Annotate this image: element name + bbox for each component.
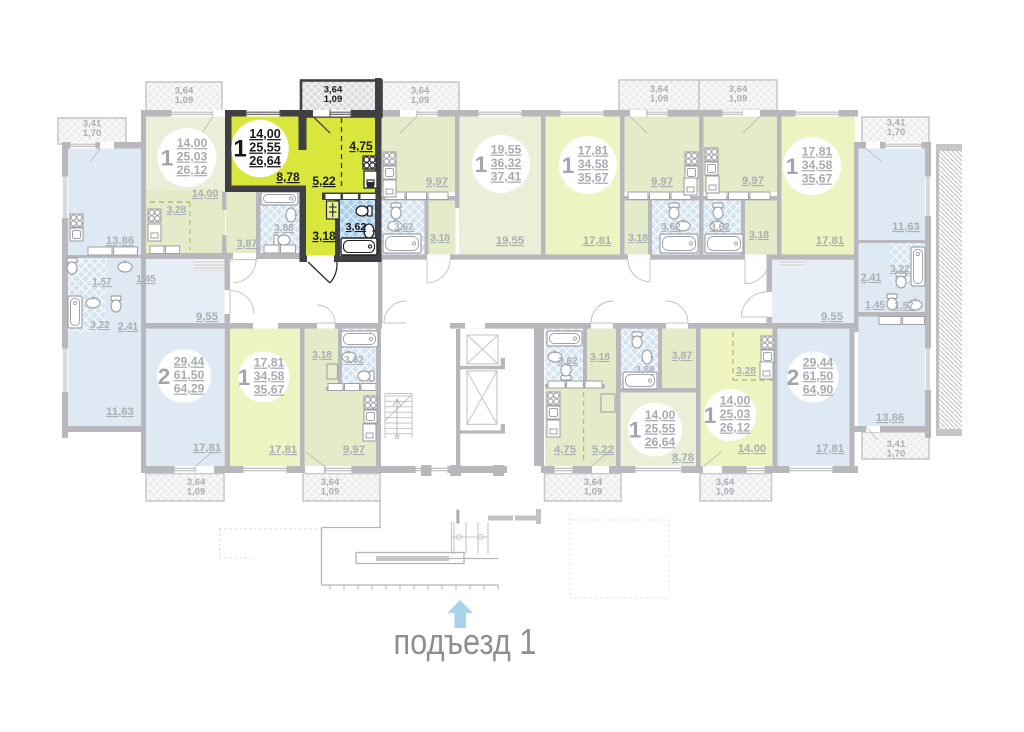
svg-text:1,09: 1,09: [729, 94, 748, 105]
svg-text:1,57: 1,57: [894, 301, 914, 312]
svg-text:1,57: 1,57: [92, 277, 112, 288]
svg-text:3,28: 3,28: [167, 205, 187, 216]
svg-text:3,88: 3,88: [635, 365, 655, 376]
svg-text:61,50: 61,50: [174, 368, 205, 382]
svg-text:14,00: 14,00: [249, 127, 281, 141]
svg-text:3,62: 3,62: [394, 222, 414, 233]
svg-text:14,00: 14,00: [738, 443, 766, 455]
svg-text:подъезд 1: подъезд 1: [394, 621, 537, 662]
svg-text:1: 1: [233, 136, 246, 163]
svg-text:3,62: 3,62: [346, 221, 367, 233]
svg-text:11,63: 11,63: [892, 221, 920, 233]
svg-text:5,22: 5,22: [592, 444, 614, 456]
svg-text:25,55: 25,55: [249, 141, 281, 155]
svg-text:3,22: 3,22: [90, 320, 110, 331]
svg-text:19,55: 19,55: [491, 143, 522, 157]
svg-text:1: 1: [704, 403, 717, 428]
svg-text:9,97: 9,97: [742, 175, 764, 187]
svg-text:1: 1: [475, 152, 488, 177]
svg-text:1: 1: [238, 365, 251, 390]
svg-text:8,78: 8,78: [276, 170, 300, 184]
svg-text:9,97: 9,97: [343, 444, 365, 456]
svg-text:11,63: 11,63: [106, 406, 134, 418]
svg-text:14,00: 14,00: [720, 394, 751, 408]
svg-text:1,09: 1,09: [321, 487, 340, 498]
svg-text:3,18: 3,18: [312, 350, 332, 361]
svg-text:2,41: 2,41: [118, 321, 139, 333]
svg-text:17,81: 17,81: [578, 144, 609, 158]
svg-text:1,45: 1,45: [865, 300, 885, 311]
svg-text:3,22: 3,22: [890, 264, 910, 275]
svg-text:3,18: 3,18: [590, 352, 610, 363]
svg-text:1,70: 1,70: [83, 128, 102, 139]
svg-text:26,64: 26,64: [645, 435, 676, 449]
svg-text:14,00: 14,00: [177, 136, 208, 150]
svg-text:1,45: 1,45: [136, 274, 156, 285]
svg-text:2: 2: [158, 364, 171, 389]
svg-text:4,75: 4,75: [349, 139, 373, 153]
svg-text:17,81: 17,81: [193, 442, 221, 454]
svg-text:14,00: 14,00: [192, 188, 219, 200]
svg-text:1: 1: [786, 154, 799, 179]
svg-text:9,97: 9,97: [651, 176, 673, 188]
svg-text:1,70: 1,70: [887, 449, 906, 460]
svg-text:1,70: 1,70: [887, 127, 906, 138]
svg-text:2: 2: [787, 365, 800, 390]
svg-text:1,09: 1,09: [584, 487, 603, 498]
svg-text:17,81: 17,81: [254, 356, 285, 370]
svg-text:25,03: 25,03: [720, 407, 751, 421]
svg-text:13,86: 13,86: [876, 412, 904, 424]
svg-text:35,67: 35,67: [578, 171, 609, 185]
svg-text:3,18: 3,18: [430, 233, 450, 244]
svg-text:1: 1: [629, 418, 642, 443]
svg-text:3,18: 3,18: [312, 229, 336, 243]
svg-text:3,88: 3,88: [274, 223, 294, 234]
svg-text:1,09: 1,09: [650, 94, 669, 105]
svg-text:4,75: 4,75: [554, 444, 576, 456]
svg-text:5,22: 5,22: [312, 174, 336, 188]
svg-text:26,64: 26,64: [249, 154, 281, 168]
svg-text:17,81: 17,81: [583, 235, 611, 247]
svg-text:26,12: 26,12: [177, 163, 208, 177]
svg-text:61,50: 61,50: [803, 369, 834, 383]
svg-text:3,62: 3,62: [558, 356, 578, 367]
svg-text:1: 1: [562, 153, 575, 178]
svg-text:3,18: 3,18: [628, 233, 648, 244]
svg-text:25,03: 25,03: [177, 150, 208, 164]
svg-text:35,67: 35,67: [802, 172, 833, 186]
svg-text:64,29: 64,29: [174, 382, 205, 396]
svg-text:1,09: 1,09: [324, 94, 343, 105]
svg-text:3,62: 3,62: [710, 222, 730, 233]
svg-text:9,55: 9,55: [196, 311, 218, 323]
svg-text:3,28: 3,28: [736, 366, 756, 377]
svg-text:1,09: 1,09: [187, 487, 206, 498]
svg-text:9,97: 9,97: [426, 176, 448, 188]
svg-text:34,58: 34,58: [254, 369, 285, 383]
svg-text:17,81: 17,81: [816, 235, 844, 247]
svg-text:1: 1: [161, 146, 174, 171]
svg-text:9,55: 9,55: [821, 311, 843, 323]
svg-text:1,09: 1,09: [716, 487, 735, 498]
svg-text:36,32: 36,32: [491, 156, 522, 170]
svg-text:3,62: 3,62: [344, 355, 364, 366]
svg-text:19,55: 19,55: [496, 235, 524, 247]
svg-text:13,86: 13,86: [106, 235, 134, 247]
svg-text:1,09: 1,09: [411, 95, 430, 106]
svg-text:17,81: 17,81: [802, 145, 833, 159]
svg-text:29,44: 29,44: [174, 355, 205, 369]
svg-text:8,78: 8,78: [672, 452, 694, 464]
svg-text:35,67: 35,67: [254, 383, 285, 397]
svg-text:34,58: 34,58: [578, 157, 609, 171]
svg-text:34,58: 34,58: [802, 158, 833, 172]
svg-text:25,55: 25,55: [645, 422, 676, 436]
svg-text:3,18: 3,18: [749, 230, 769, 241]
svg-text:17,81: 17,81: [269, 444, 297, 456]
svg-text:14,00: 14,00: [645, 408, 676, 422]
svg-text:2,41: 2,41: [861, 272, 882, 284]
svg-text:29,44: 29,44: [803, 356, 834, 370]
svg-text:17,81: 17,81: [816, 443, 844, 455]
svg-text:3,62: 3,62: [661, 222, 681, 233]
svg-text:3,87: 3,87: [672, 350, 693, 362]
svg-text:1,09: 1,09: [175, 95, 194, 106]
svg-text:37,41: 37,41: [491, 170, 522, 184]
svg-text:3,87: 3,87: [237, 238, 258, 250]
svg-text:64,90: 64,90: [803, 383, 834, 397]
svg-text:26,12: 26,12: [720, 421, 751, 435]
